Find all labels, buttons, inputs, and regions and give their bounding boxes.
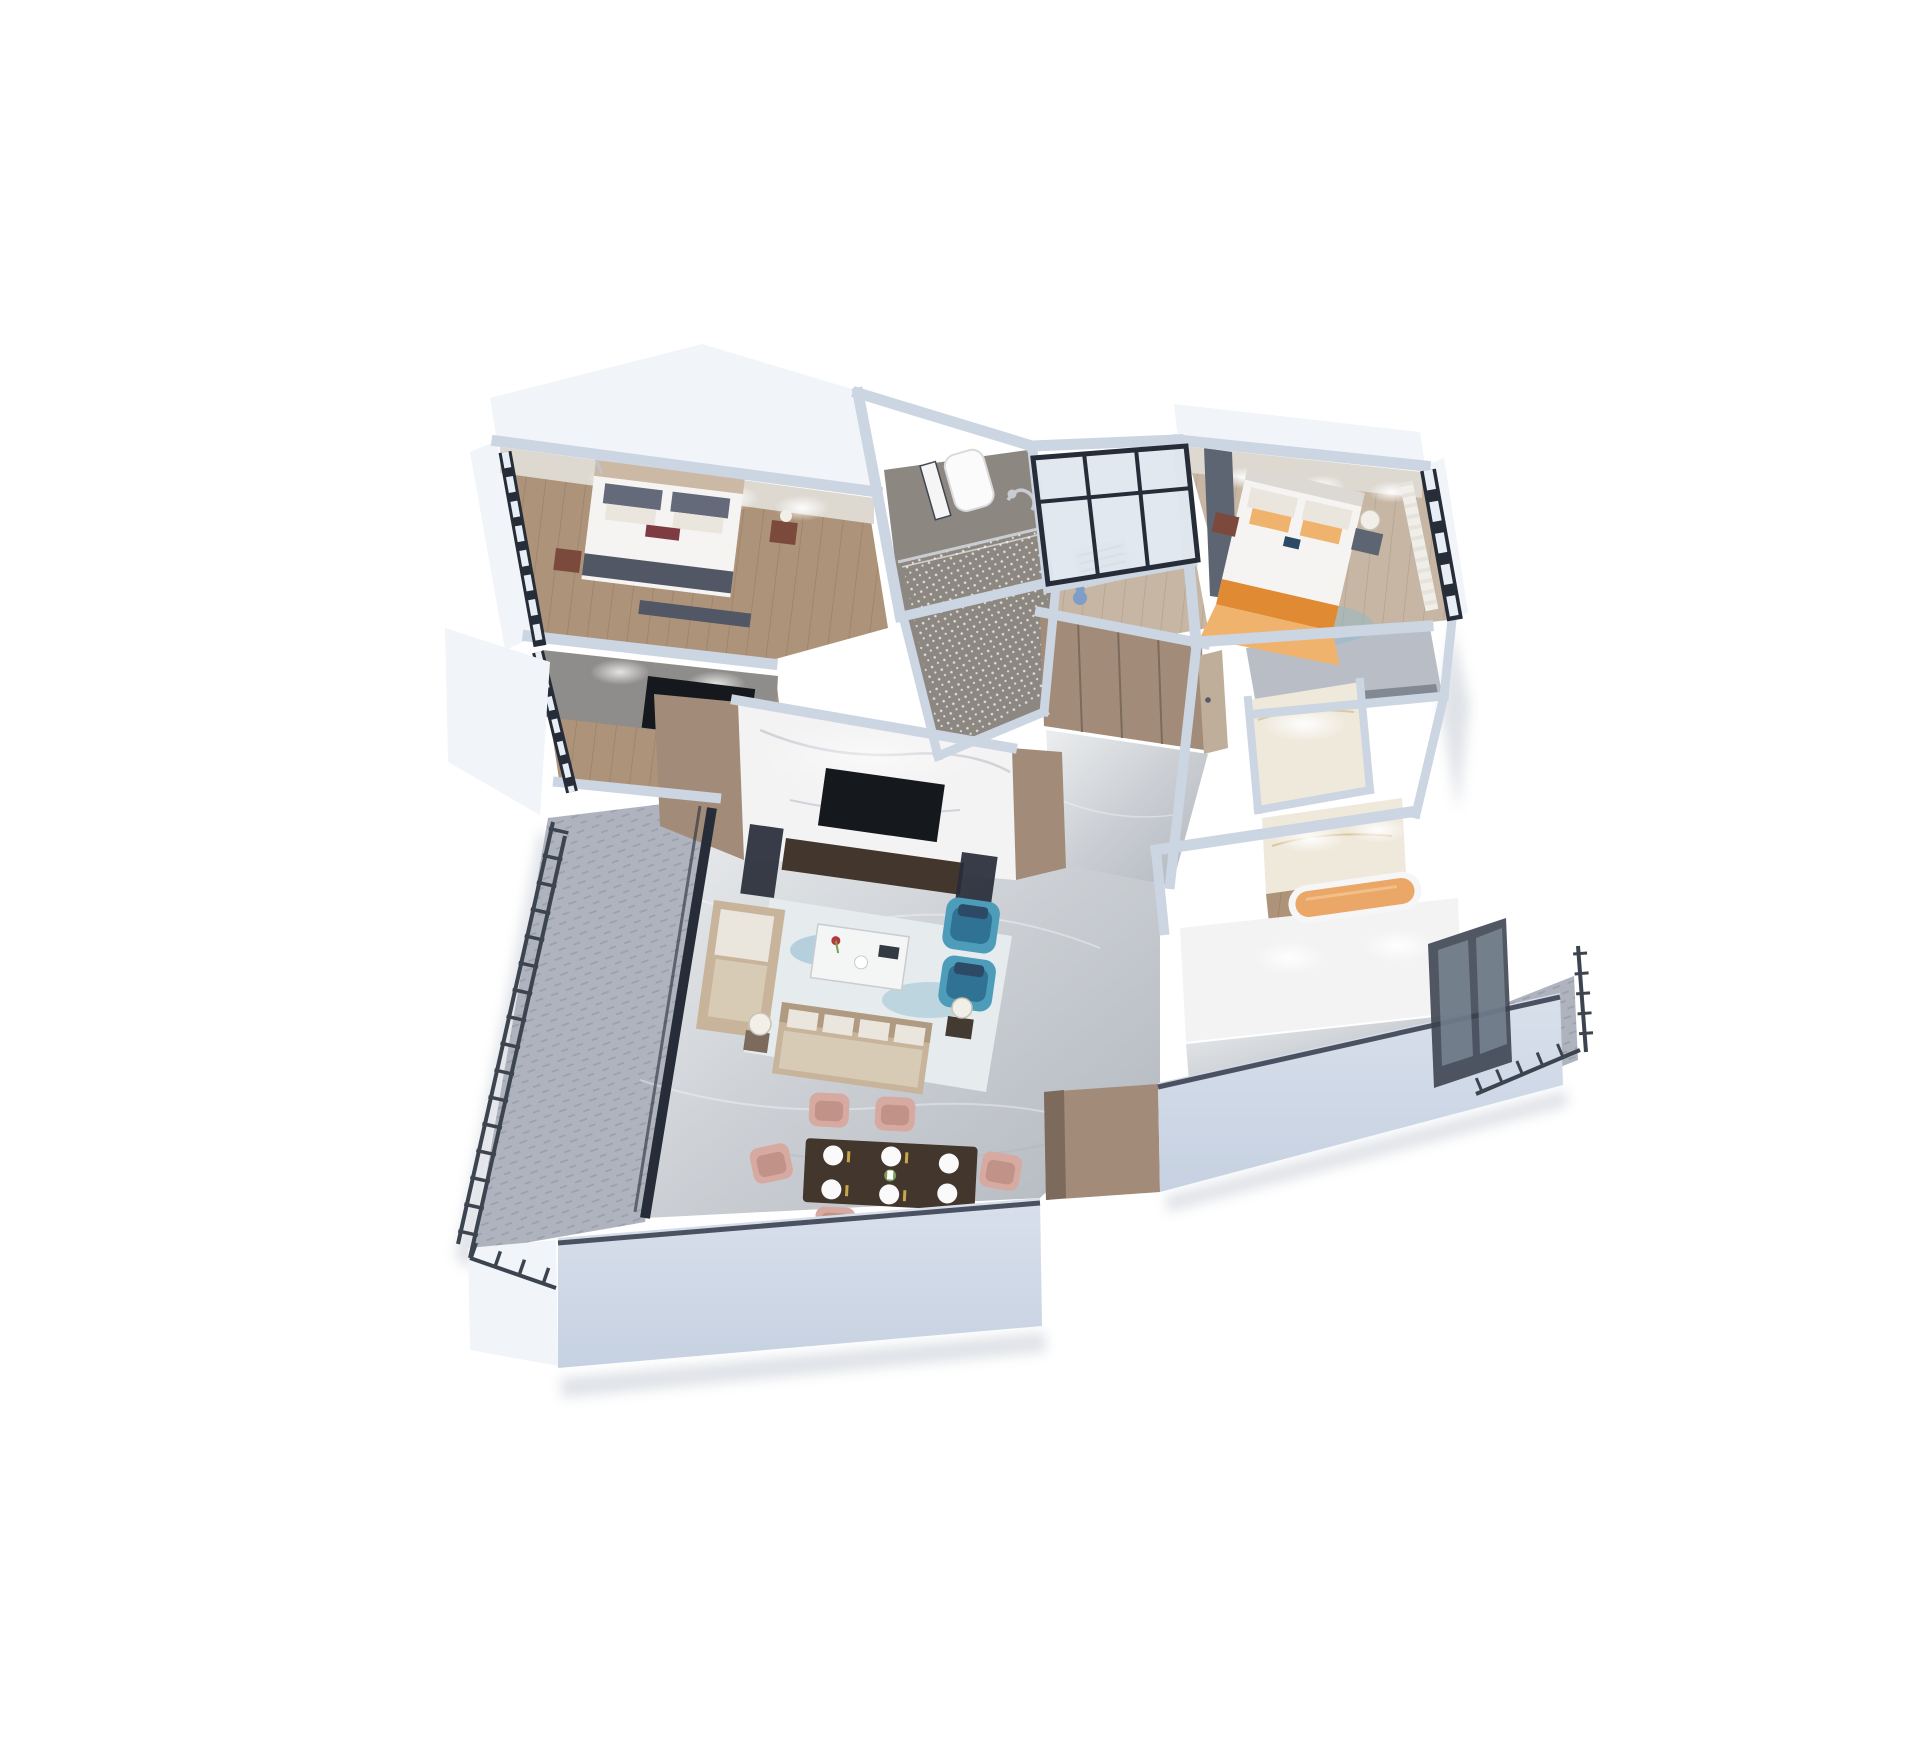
wall-pillar-right bbox=[1012, 748, 1066, 880]
nightstand-right bbox=[769, 520, 797, 545]
dining-chair-e bbox=[978, 1150, 1024, 1192]
floorplan-render bbox=[0, 0, 1920, 1754]
dining-table bbox=[803, 1138, 978, 1211]
door-handle bbox=[1205, 697, 1211, 703]
floor-lamp-east bbox=[952, 998, 972, 1018]
bedroom2-lamp bbox=[1360, 510, 1380, 530]
apartment-3d-svg bbox=[0, 0, 1920, 1754]
balcony-south-wall bbox=[468, 1240, 558, 1366]
dining-chair-n2 bbox=[874, 1096, 916, 1132]
master-bed bbox=[581, 460, 745, 597]
armchair-1 bbox=[941, 896, 1002, 955]
side-table-east bbox=[945, 1016, 974, 1039]
dining-chair-n1 bbox=[808, 1092, 850, 1128]
nightstand-left bbox=[553, 548, 581, 573]
table-lamp bbox=[780, 510, 792, 522]
shower-head bbox=[1008, 490, 1017, 499]
floor-lamp-west bbox=[749, 1013, 771, 1035]
